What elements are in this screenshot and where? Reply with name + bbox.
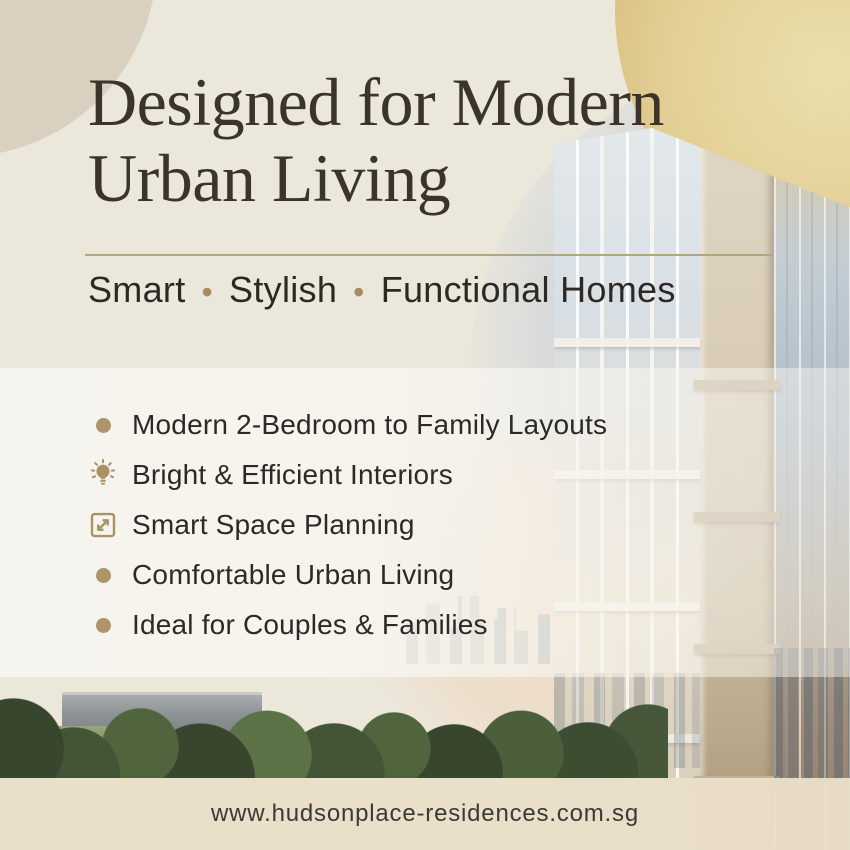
feature-label: Ideal for Couples & Families xyxy=(132,609,488,641)
tagline-word: Stylish xyxy=(229,269,337,311)
feature-item-layouts: Modern 2-Bedroom to Family Layouts xyxy=(84,400,607,450)
footer-strip: www.hudsonplace-residences.com.sg xyxy=(0,778,850,850)
dot-separator-icon: • xyxy=(202,276,214,308)
title-line-1: Designed for Modern xyxy=(88,64,664,140)
feature-list: Modern 2-Bedroom to Family Layouts xyxy=(84,400,607,650)
tree-foliage xyxy=(0,674,668,778)
page-title: Designed for Modern Urban Living xyxy=(88,64,664,216)
website-url: www.hudsonplace-residences.com.sg xyxy=(211,800,639,828)
bullet-dot-icon xyxy=(84,618,122,633)
feature-label: Modern 2-Bedroom to Family Layouts xyxy=(132,409,607,441)
lightbulb-icon xyxy=(84,459,122,491)
feature-label: Comfortable Urban Living xyxy=(132,559,454,591)
headline-block: Designed for Modern Urban Living xyxy=(88,64,664,216)
bullet-dot-icon xyxy=(84,568,122,583)
expand-arrows-icon xyxy=(84,510,122,540)
dot-separator-icon: • xyxy=(353,276,365,308)
feature-item-interiors: Bright & Efficient Interiors xyxy=(84,450,607,500)
greenery-band-image xyxy=(0,674,668,778)
gold-divider-line xyxy=(85,254,773,256)
title-line-2: Urban Living xyxy=(88,140,664,216)
tagline: Smart • Stylish • Functional Homes xyxy=(88,269,676,311)
tagline-word: Smart xyxy=(88,269,186,311)
feature-item-couples-families: Ideal for Couples & Families xyxy=(84,600,607,650)
feature-item-space-planning: Smart Space Planning xyxy=(84,500,607,550)
feature-label: Smart Space Planning xyxy=(132,509,415,541)
feature-item-urban-living: Comfortable Urban Living xyxy=(84,550,607,600)
tagline-word: Functional Homes xyxy=(381,269,676,311)
bullet-dot-icon xyxy=(84,418,122,433)
feature-label: Bright & Efficient Interiors xyxy=(132,459,453,491)
